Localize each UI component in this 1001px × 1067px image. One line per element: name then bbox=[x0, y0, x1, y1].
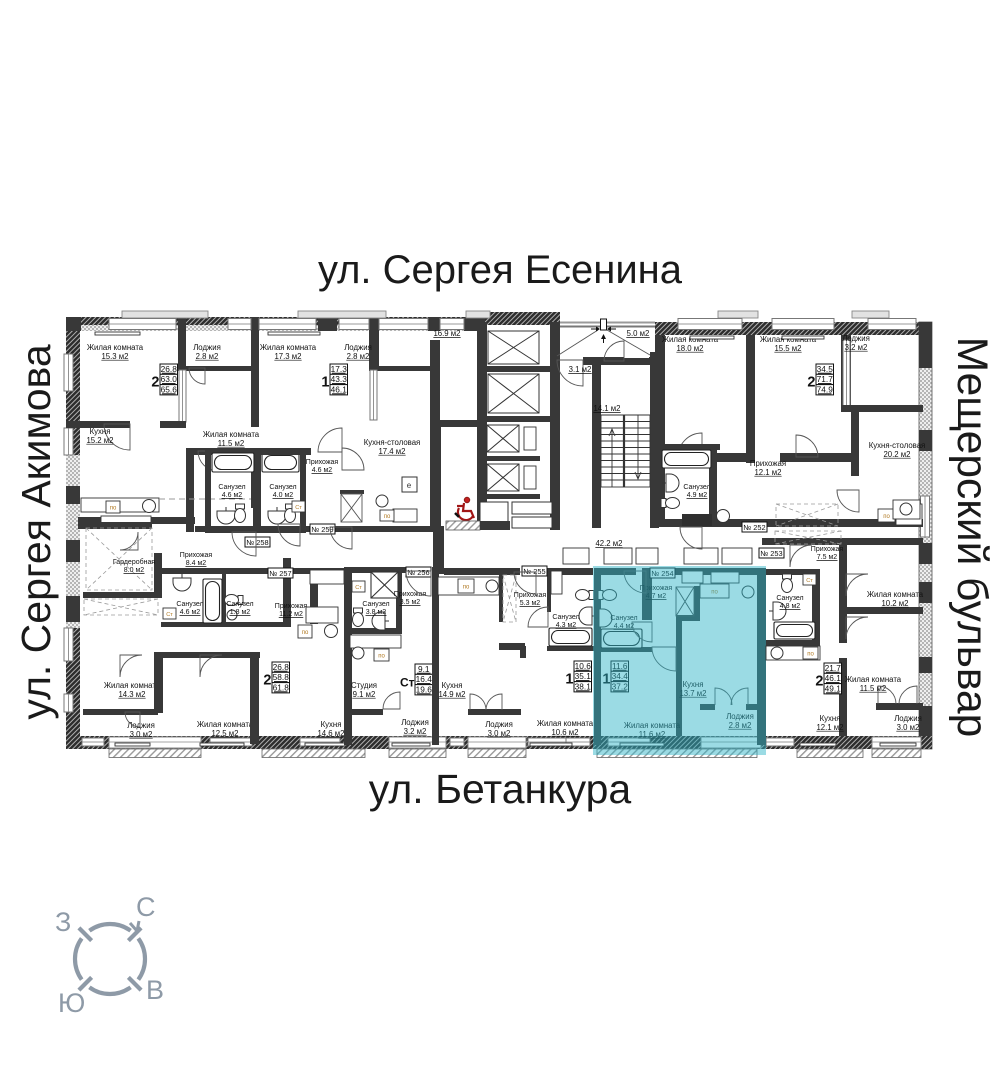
svg-text:Ст: Ст bbox=[295, 505, 302, 511]
svg-text:Ст: Ст bbox=[806, 578, 813, 584]
svg-text:12.1 м2: 12.1 м2 bbox=[816, 723, 843, 732]
svg-text:В: В bbox=[146, 975, 164, 1005]
svg-text:Ст: Ст bbox=[166, 612, 173, 618]
svg-text:Гардеробная: Гардеробная bbox=[113, 558, 156, 566]
svg-text:2: 2 bbox=[807, 375, 815, 391]
svg-text:Жилая комната: Жилая комната bbox=[537, 719, 594, 728]
svg-text:Прихожая: Прихожая bbox=[306, 459, 339, 466]
svg-text:Жилая комната: Жилая комната bbox=[845, 675, 902, 684]
svg-text:№ 256: № 256 bbox=[407, 568, 429, 577]
svg-text:Лоджия: Лоджия bbox=[485, 720, 513, 729]
svg-text:ул. Сергея Акимова: ул. Сергея Акимова bbox=[13, 344, 59, 719]
svg-text:1: 1 bbox=[321, 375, 329, 391]
svg-text:1.8 м2: 1.8 м2 bbox=[230, 609, 250, 616]
svg-text:Кухня-столовая: Кухня-столовая bbox=[869, 441, 926, 450]
svg-text:42.2 м2: 42.2 м2 bbox=[595, 539, 622, 548]
svg-text:5.0 м2: 5.0 м2 bbox=[627, 329, 650, 338]
svg-text:по: по bbox=[110, 506, 117, 512]
svg-text:4.3 м2: 4.3 м2 bbox=[556, 622, 576, 629]
svg-text:Прихожая: Прихожая bbox=[750, 459, 786, 468]
svg-text:Санузел: Санузел bbox=[218, 484, 245, 491]
svg-text:58.8: 58.8 bbox=[273, 672, 290, 682]
svg-text:26.8: 26.8 bbox=[161, 364, 178, 374]
svg-text:3.0 м2: 3.0 м2 bbox=[897, 723, 920, 732]
svg-text:20.2 м2: 20.2 м2 bbox=[883, 450, 910, 459]
svg-text:18.0 м2: 18.0 м2 bbox=[676, 344, 703, 353]
svg-text:7.5 м2: 7.5 м2 bbox=[817, 554, 837, 561]
svg-text:14.6 м2: 14.6 м2 bbox=[317, 729, 344, 738]
svg-text:17.3 м2: 17.3 м2 bbox=[274, 352, 301, 361]
svg-text:Санузел: Санузел bbox=[176, 601, 203, 608]
svg-text:3.2 м2: 3.2 м2 bbox=[845, 343, 868, 352]
svg-text:Лоджия: Лоджия bbox=[894, 714, 922, 723]
svg-text:по: по bbox=[384, 514, 391, 520]
svg-text:по: по bbox=[378, 654, 385, 660]
svg-text:Лоджия: Лоджия bbox=[193, 343, 221, 352]
svg-text:26.8: 26.8 bbox=[273, 662, 290, 672]
svg-text:Кухня: Кухня bbox=[442, 681, 463, 690]
svg-text:№ 257: № 257 bbox=[269, 569, 291, 578]
svg-text:9.1 м2: 9.1 м2 bbox=[353, 690, 376, 699]
svg-text:Санузел: Санузел bbox=[269, 484, 296, 491]
svg-text:21.7: 21.7 bbox=[825, 663, 842, 673]
svg-text:Ст: Ст bbox=[400, 676, 415, 690]
svg-text:15.5 м2: 15.5 м2 bbox=[774, 344, 801, 353]
svg-text:№ 258: № 258 bbox=[246, 538, 268, 547]
svg-text:46.1: 46.1 bbox=[331, 385, 348, 395]
svg-text:Лоджия: Лоджия bbox=[401, 718, 429, 727]
svg-text:14.9 м2: 14.9 м2 bbox=[438, 690, 465, 699]
svg-text:15.2 м2: 15.2 м2 bbox=[86, 436, 113, 445]
svg-text:2.8 м2: 2.8 м2 bbox=[196, 352, 219, 361]
svg-text:№ 255: № 255 bbox=[523, 567, 545, 576]
svg-text:34.5: 34.5 bbox=[817, 364, 834, 374]
svg-text:Санузел: Санузел bbox=[226, 601, 253, 608]
svg-text:4.0 м2: 4.0 м2 bbox=[273, 492, 293, 499]
svg-text:17.4 м2: 17.4 м2 bbox=[378, 447, 405, 456]
svg-text:3.8 м2: 3.8 м2 bbox=[366, 609, 386, 616]
svg-text:4.6 м2: 4.6 м2 bbox=[180, 609, 200, 616]
svg-text:Санузел: Санузел bbox=[362, 601, 389, 608]
svg-text:4.8 м2: 4.8 м2 bbox=[780, 603, 800, 610]
svg-text:16.9 м2: 16.9 м2 bbox=[433, 329, 460, 338]
svg-text:12.5 м2: 12.5 м2 bbox=[211, 729, 238, 738]
svg-text:Жилая комната: Жилая комната bbox=[260, 343, 317, 352]
svg-text:Прихожая: Прихожая bbox=[811, 546, 844, 553]
svg-text:43.3: 43.3 bbox=[331, 374, 348, 384]
svg-text:3.1 м2: 3.1 м2 bbox=[569, 365, 592, 374]
svg-text:3.2 м2: 3.2 м2 bbox=[404, 727, 427, 736]
svg-text:Кухня: Кухня bbox=[820, 714, 841, 723]
svg-text:Жилая комната: Жилая комната bbox=[104, 681, 161, 690]
svg-text:Кухня: Кухня bbox=[90, 427, 111, 436]
svg-text:17.3: 17.3 bbox=[331, 364, 348, 374]
svg-text:14.3 м2: 14.3 м2 bbox=[118, 690, 145, 699]
svg-text:5.3 м2: 5.3 м2 bbox=[520, 600, 540, 607]
svg-text:по: по bbox=[807, 652, 814, 658]
svg-text:e: e bbox=[407, 481, 412, 490]
svg-text:Прихожая: Прихожая bbox=[275, 603, 308, 610]
svg-text:Кухня-столовая: Кухня-столовая bbox=[364, 438, 421, 447]
svg-text:3.0 м2: 3.0 м2 bbox=[488, 729, 511, 738]
svg-text:61.8: 61.8 bbox=[273, 683, 290, 693]
svg-text:74.9: 74.9 bbox=[817, 385, 834, 395]
svg-text:по: по bbox=[302, 630, 309, 636]
svg-text:3.0 м2: 3.0 м2 bbox=[130, 730, 153, 739]
svg-text:10.6: 10.6 bbox=[575, 661, 592, 671]
svg-text:ул. Сергея Есенина: ул. Сергея Есенина bbox=[318, 248, 683, 292]
svg-text:11.2 м2: 11.2 м2 bbox=[279, 611, 303, 618]
svg-text:11.5 м2: 11.5 м2 bbox=[860, 684, 886, 693]
svg-text:38.1: 38.1 bbox=[575, 682, 592, 692]
svg-text:65.6: 65.6 bbox=[161, 385, 178, 395]
svg-text:Жилая комната: Жилая комната bbox=[197, 720, 254, 729]
svg-text:2: 2 bbox=[815, 674, 823, 690]
svg-text:№ 252: № 252 bbox=[743, 523, 765, 532]
svg-text:Санузел: Санузел bbox=[683, 484, 710, 491]
svg-text:Санузел: Санузел bbox=[552, 614, 579, 621]
svg-text:46.1: 46.1 bbox=[825, 673, 842, 683]
svg-text:Жилая комната: Жилая комната bbox=[203, 430, 260, 439]
svg-text:4.9 м2: 4.9 м2 bbox=[687, 492, 707, 499]
svg-text:9.1: 9.1 bbox=[418, 664, 430, 674]
svg-text:2: 2 bbox=[263, 673, 271, 689]
svg-text:49.1: 49.1 bbox=[825, 684, 842, 694]
svg-text:Прихожая: Прихожая bbox=[180, 552, 213, 559]
svg-text:Санузел: Санузел bbox=[776, 595, 803, 602]
svg-text:16.4: 16.4 bbox=[416, 674, 433, 684]
svg-text:8.0 м2: 8.0 м2 bbox=[124, 567, 144, 574]
svg-text:14.1 м2: 14.1 м2 bbox=[593, 404, 620, 413]
svg-text:35.1: 35.1 bbox=[575, 671, 592, 681]
svg-text:15.3 м2: 15.3 м2 bbox=[101, 352, 128, 361]
svg-text:Жилая комната: Жилая комната bbox=[867, 590, 924, 599]
svg-text:71.7: 71.7 bbox=[817, 374, 834, 384]
svg-text:2: 2 bbox=[151, 375, 159, 391]
svg-text:1: 1 bbox=[565, 672, 573, 688]
svg-text:Студия: Студия bbox=[351, 681, 377, 690]
svg-text:4.6 м2: 4.6 м2 bbox=[312, 467, 332, 474]
svg-text:Кухня: Кухня bbox=[321, 720, 342, 729]
svg-text:11.5 м2: 11.5 м2 bbox=[218, 439, 244, 448]
svg-text:Лоджия: Лоджия bbox=[127, 721, 155, 730]
svg-text:ул. Бетанкура: ул. Бетанкура bbox=[369, 766, 632, 812]
svg-text:3.5 м2: 3.5 м2 bbox=[400, 599, 420, 606]
svg-text:10.6 м2: 10.6 м2 bbox=[551, 728, 578, 737]
svg-text:Ст: Ст bbox=[355, 585, 362, 591]
svg-text:Мещерский бульвар: Мещерский бульвар bbox=[948, 337, 995, 737]
svg-text:2.8 м2: 2.8 м2 bbox=[347, 352, 370, 361]
svg-text:10.2 м2: 10.2 м2 bbox=[881, 599, 908, 608]
svg-text:по: по bbox=[883, 514, 890, 520]
svg-text:Жилая комната: Жилая комната bbox=[87, 343, 144, 352]
svg-text:8.4 м2: 8.4 м2 bbox=[186, 560, 206, 567]
svg-text:З: З bbox=[55, 907, 71, 937]
svg-text:Лоджия: Лоджия bbox=[344, 343, 372, 352]
svg-text:4.6 м2: 4.6 м2 bbox=[222, 492, 242, 499]
svg-text:63.0: 63.0 bbox=[161, 374, 178, 384]
svg-text:Лоджия: Лоджия bbox=[842, 334, 870, 343]
svg-text:Ю: Ю bbox=[58, 988, 85, 1018]
svg-text:№ 253: № 253 bbox=[760, 549, 782, 558]
svg-text:19.6: 19.6 bbox=[416, 685, 433, 695]
svg-text:12.1 м2: 12.1 м2 bbox=[754, 468, 781, 477]
svg-text:С: С bbox=[136, 892, 156, 922]
svg-text:по: по bbox=[463, 585, 470, 591]
